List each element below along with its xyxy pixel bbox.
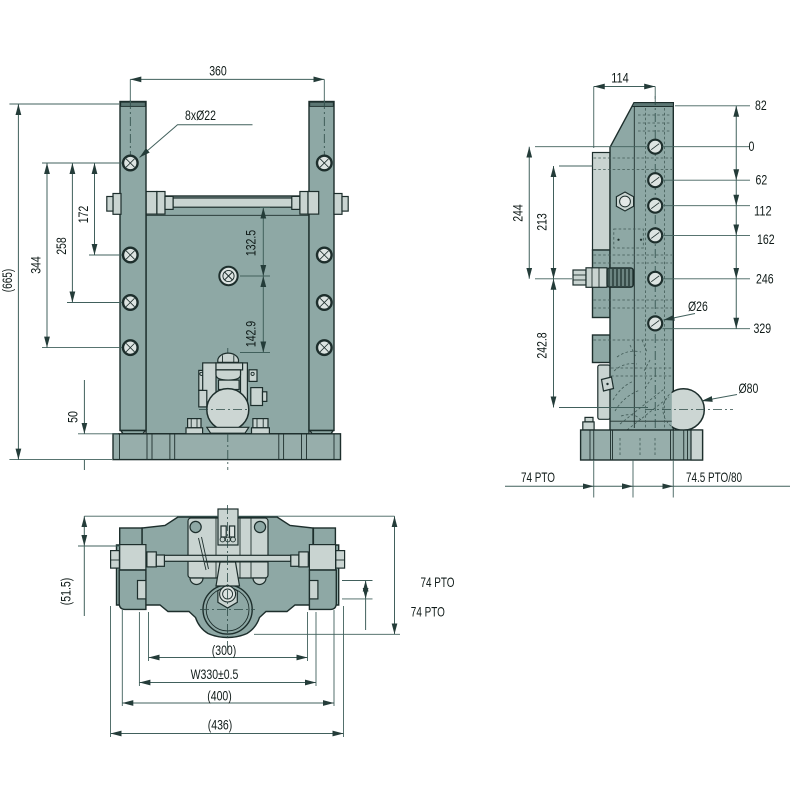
svg-text:344: 344	[28, 256, 44, 274]
svg-text:74 PTO: 74 PTO	[421, 574, 455, 590]
svg-text:213: 213	[534, 213, 550, 231]
svg-text:62: 62	[756, 172, 768, 188]
svg-text:132.5: 132.5	[243, 230, 259, 256]
svg-text:112: 112	[754, 203, 772, 219]
svg-text:Ø26: Ø26	[688, 298, 708, 314]
svg-text:74 PTO: 74 PTO	[411, 604, 445, 620]
svg-text:329: 329	[754, 320, 772, 336]
svg-text:74 PTO: 74 PTO	[521, 469, 555, 485]
svg-text:162: 162	[757, 231, 775, 247]
svg-text:50: 50	[65, 411, 81, 423]
svg-text:172: 172	[75, 206, 91, 224]
svg-text:82: 82	[755, 97, 767, 113]
svg-text:360: 360	[209, 63, 227, 79]
svg-text:W330±0.5: W330±0.5	[191, 666, 239, 682]
svg-text:142.9: 142.9	[243, 321, 259, 347]
svg-text:Ø80: Ø80	[739, 380, 759, 396]
svg-text:242.8: 242.8	[534, 332, 550, 358]
svg-text:(400): (400)	[207, 688, 232, 704]
svg-text:0: 0	[749, 138, 755, 154]
svg-text:244: 244	[510, 204, 526, 222]
svg-text:258: 258	[53, 237, 69, 255]
svg-text:(665): (665)	[0, 269, 15, 293]
svg-text:(51.5): (51.5)	[58, 578, 74, 605]
svg-text:8xØ22: 8xØ22	[185, 107, 216, 123]
svg-text:246: 246	[756, 270, 774, 286]
svg-text:(436): (436)	[208, 717, 233, 733]
svg-text:74.5 PTO/80: 74.5 PTO/80	[686, 469, 742, 485]
svg-text:(300): (300)	[212, 642, 237, 658]
svg-text:114: 114	[611, 70, 629, 86]
